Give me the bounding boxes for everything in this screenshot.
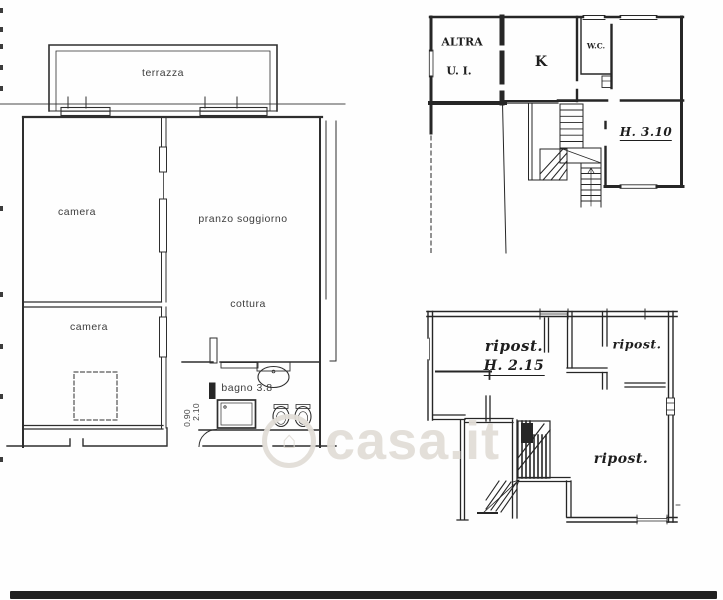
room-label-bedroom1: camera — [58, 206, 96, 218]
label-height-215: H. 2.15 — [484, 358, 545, 376]
kitchen-counter — [210, 338, 217, 363]
window — [620, 185, 657, 189]
scan-mark — [0, 27, 3, 32]
wc-room — [581, 17, 612, 88]
room-label-kitchen: cottura — [230, 298, 266, 310]
staircase — [529, 103, 602, 207]
right-window — [667, 398, 675, 415]
scan-mark — [0, 457, 3, 462]
window — [429, 50, 433, 77]
interior-wall-vertical — [160, 117, 167, 428]
label-k: K — [535, 54, 547, 70]
label-ui: U. I. — [446, 65, 471, 78]
scan-mark — [0, 206, 3, 211]
scan-mark — [0, 65, 3, 70]
pillar — [486, 396, 490, 421]
duct-wall — [457, 420, 468, 520]
shower-tray — [218, 400, 256, 428]
toilet — [273, 405, 289, 427]
door-jamb — [209, 383, 216, 400]
scan-mark — [0, 394, 3, 399]
scan-mark — [0, 344, 3, 349]
room-label-living: pranzo soggiorno — [198, 213, 287, 225]
door-swing-arc — [199, 429, 217, 446]
scan-mark — [0, 44, 3, 49]
boundary-line — [503, 103, 507, 253]
door-dim-height: 2.10 — [191, 403, 201, 421]
room-label-bath: bagno 3.8 — [221, 382, 272, 394]
scan-mark — [0, 292, 3, 297]
label-ripost-1: ripost. — [485, 337, 543, 355]
label-altra: ALTRA — [441, 36, 482, 49]
winder-stair — [518, 421, 550, 478]
room-label-bedroom2: camera — [70, 321, 108, 333]
scan-mark — [0, 8, 3, 13]
floorplan-scan: terrazza camera pranzo soggiorno cottura… — [0, 0, 723, 600]
label-ripost-2: ripost. — [612, 337, 661, 352]
outer-wall-left — [428, 312, 433, 421]
plan-main-drawing — [0, 45, 345, 447]
scan-edge-bar — [10, 591, 717, 599]
door-dim-width: 0.90 — [182, 409, 192, 427]
wardrobe-dashed — [74, 372, 117, 420]
outer-wall-bottom — [7, 428, 167, 446]
central-wall — [568, 312, 573, 369]
plan-linework — [0, 0, 723, 600]
outer-wall-right — [669, 312, 674, 523]
scan-mark — [0, 86, 3, 91]
label-ripost-3: ripost. — [594, 451, 649, 467]
label-wc: W.C. — [587, 42, 605, 51]
window — [637, 515, 667, 524]
adjacent-building-line — [330, 121, 336, 361]
room-label-terrace: terrazza — [142, 67, 184, 79]
bedroom-divider-wall — [23, 302, 162, 307]
bidet — [295, 405, 311, 427]
label-height-310: H. 3.10 — [620, 125, 672, 141]
